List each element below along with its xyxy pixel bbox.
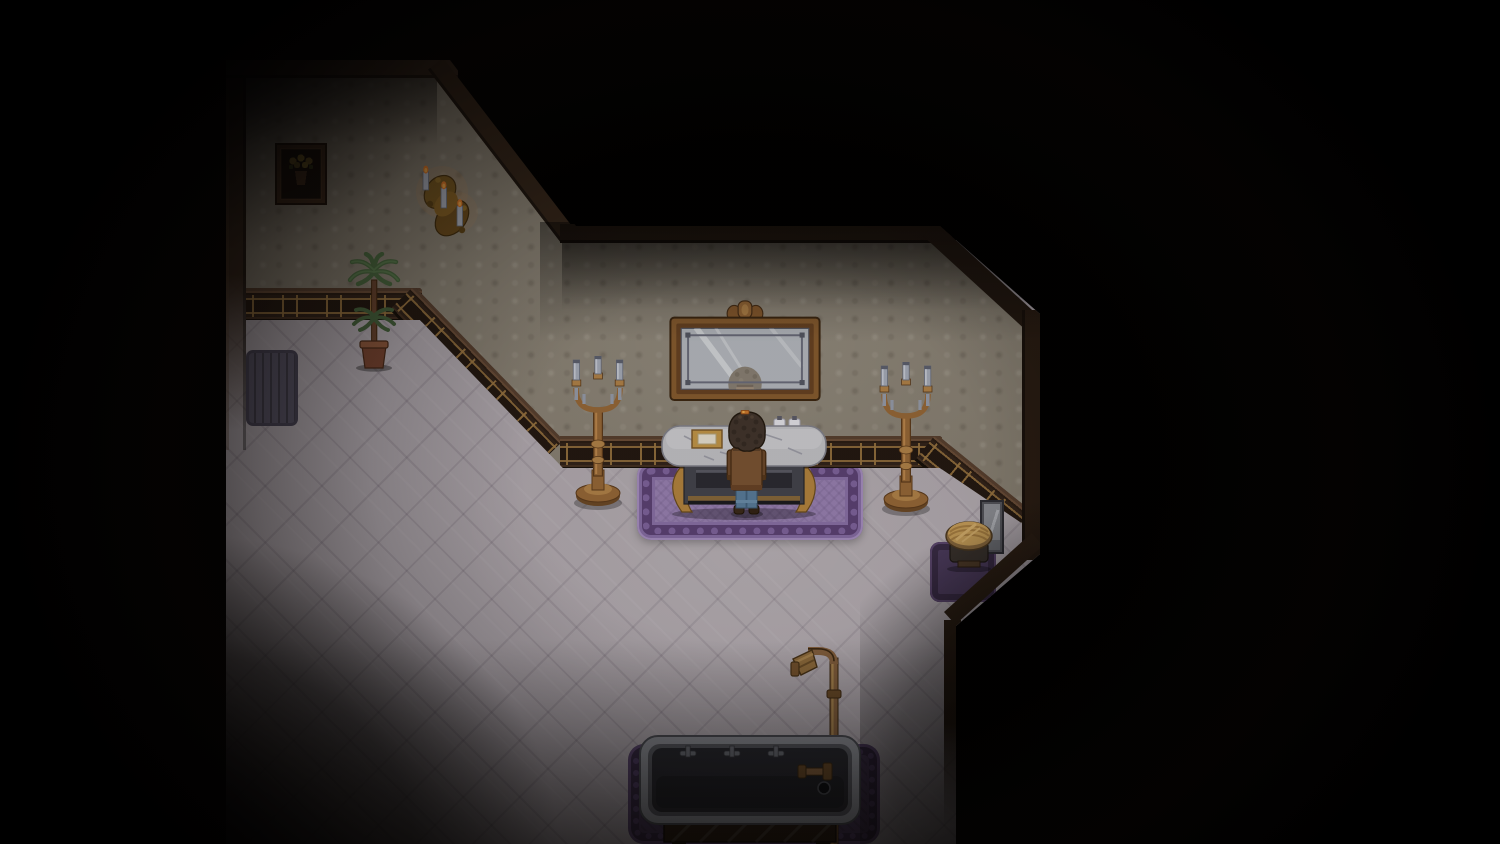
candelabra-left <box>566 356 630 512</box>
wall-trim-top-left-room <box>226 60 458 78</box>
wall-trim-left <box>226 60 246 450</box>
wall-mirror[interactable] <box>668 296 822 402</box>
framed-flower-painting <box>275 143 327 205</box>
game-viewport[interactable] <box>0 0 1500 844</box>
wall-trim-right <box>1022 310 1040 560</box>
wall-trim-bottom-right <box>944 620 961 844</box>
potted-palm <box>344 252 404 372</box>
bathtub[interactable] <box>632 732 868 844</box>
floor-mat <box>246 350 298 426</box>
wall-shadow <box>246 76 437 146</box>
wicker-stool[interactable] <box>942 514 996 572</box>
bathroom-room <box>0 0 1500 844</box>
wall-trim-top-main <box>560 224 952 243</box>
wall-candle-sconce <box>414 164 478 252</box>
player-character <box>722 410 772 518</box>
candelabra-right <box>874 362 938 518</box>
